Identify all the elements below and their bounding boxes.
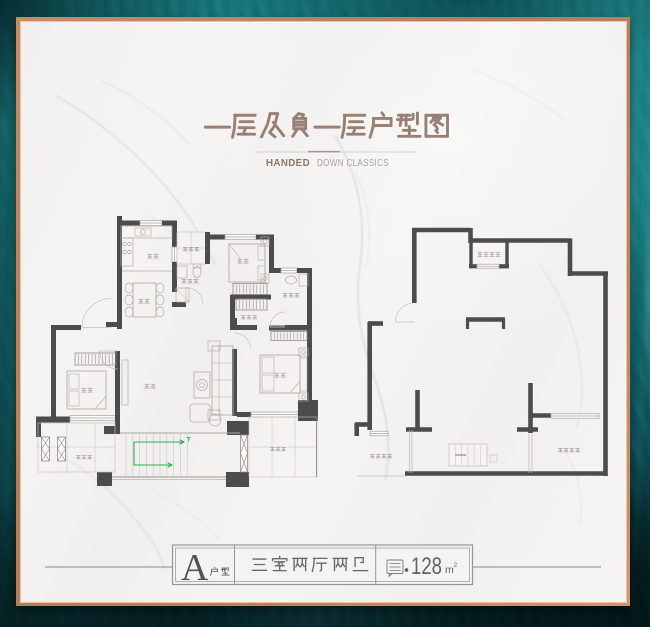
svg-text:128: 128 bbox=[411, 553, 442, 580]
svg-text:DOWN CLASSICS: DOWN CLASSICS bbox=[317, 158, 389, 169]
svg-text:A: A bbox=[181, 547, 209, 589]
svg-text:HANDED: HANDED bbox=[266, 157, 310, 169]
svg-text:2: 2 bbox=[454, 562, 458, 569]
